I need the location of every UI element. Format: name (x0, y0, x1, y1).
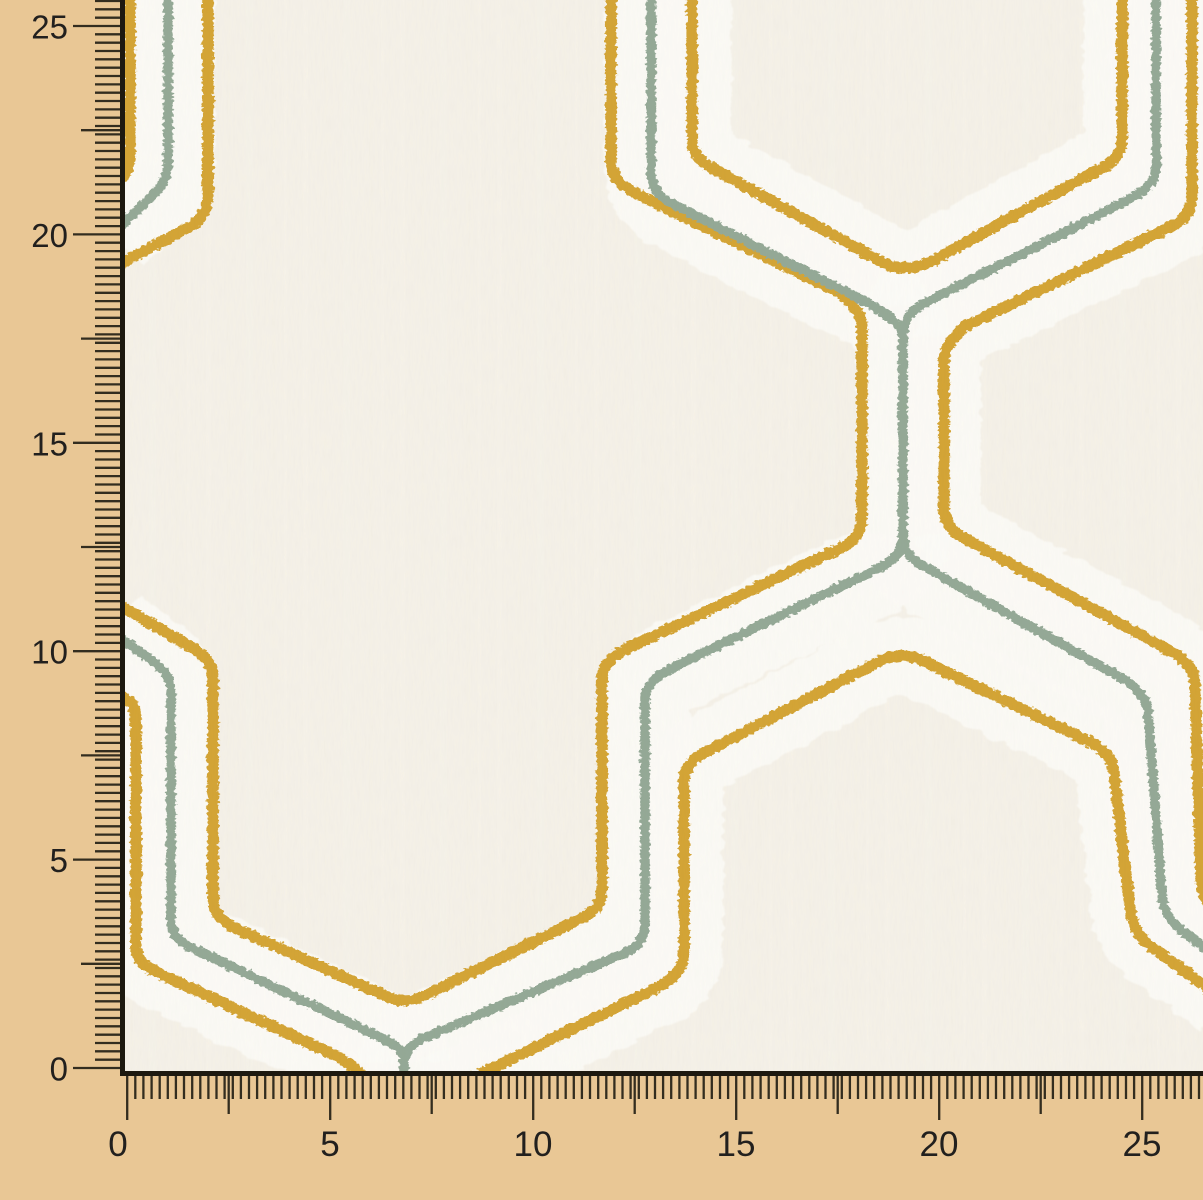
svg-text:25: 25 (1123, 1125, 1162, 1164)
svg-text:15: 15 (717, 1125, 756, 1164)
svg-text:0: 0 (108, 1125, 127, 1164)
svg-text:10: 10 (31, 634, 68, 671)
svg-text:20: 20 (31, 217, 68, 254)
svg-text:0: 0 (50, 1051, 68, 1088)
svg-text:15: 15 (31, 425, 68, 462)
svg-text:5: 5 (50, 842, 68, 879)
svg-text:10: 10 (514, 1125, 553, 1164)
svg-text:5: 5 (320, 1125, 339, 1164)
svg-text:20: 20 (920, 1125, 959, 1164)
svg-text:25: 25 (31, 9, 68, 46)
